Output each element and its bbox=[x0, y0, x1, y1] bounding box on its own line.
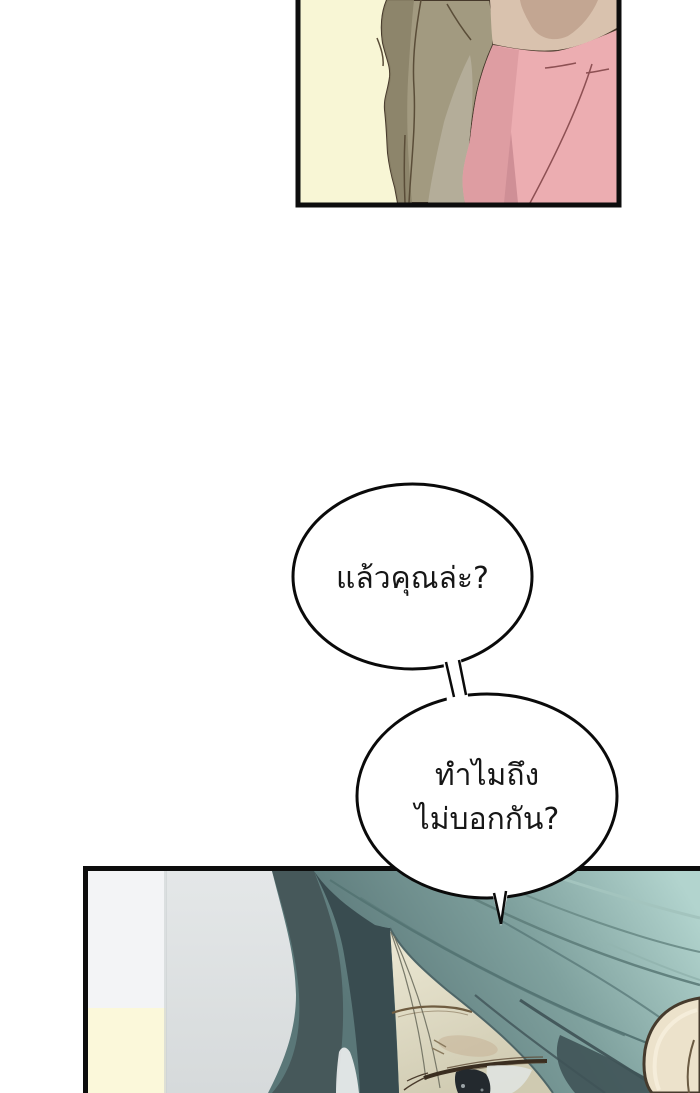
bubble2-line1: ทำไมถึง bbox=[435, 754, 539, 798]
eye-highlight-small bbox=[481, 1089, 484, 1092]
wall-yellow-column bbox=[88, 1008, 166, 1093]
wall-column-edge bbox=[164, 871, 167, 1093]
wall-white-column bbox=[88, 871, 166, 1009]
bubble2-line2: ไม่บอกกัน? bbox=[415, 798, 560, 842]
comic-page: แล้วคุณล่ะ? ทำไมถึง ไม่บอกกัน? bbox=[0, 0, 700, 1093]
panel-top bbox=[300, 0, 617, 203]
bubble1-line: แล้วคุณล่ะ? bbox=[336, 557, 489, 601]
speech-bubble-1-text: แล้วคุณล่ะ? bbox=[293, 490, 532, 668]
eye-highlight bbox=[461, 1084, 465, 1088]
panel-bottom bbox=[88, 871, 700, 1093]
speech-bubble-2-text: ทำไมถึง ไม่บอกกัน? bbox=[357, 700, 617, 896]
